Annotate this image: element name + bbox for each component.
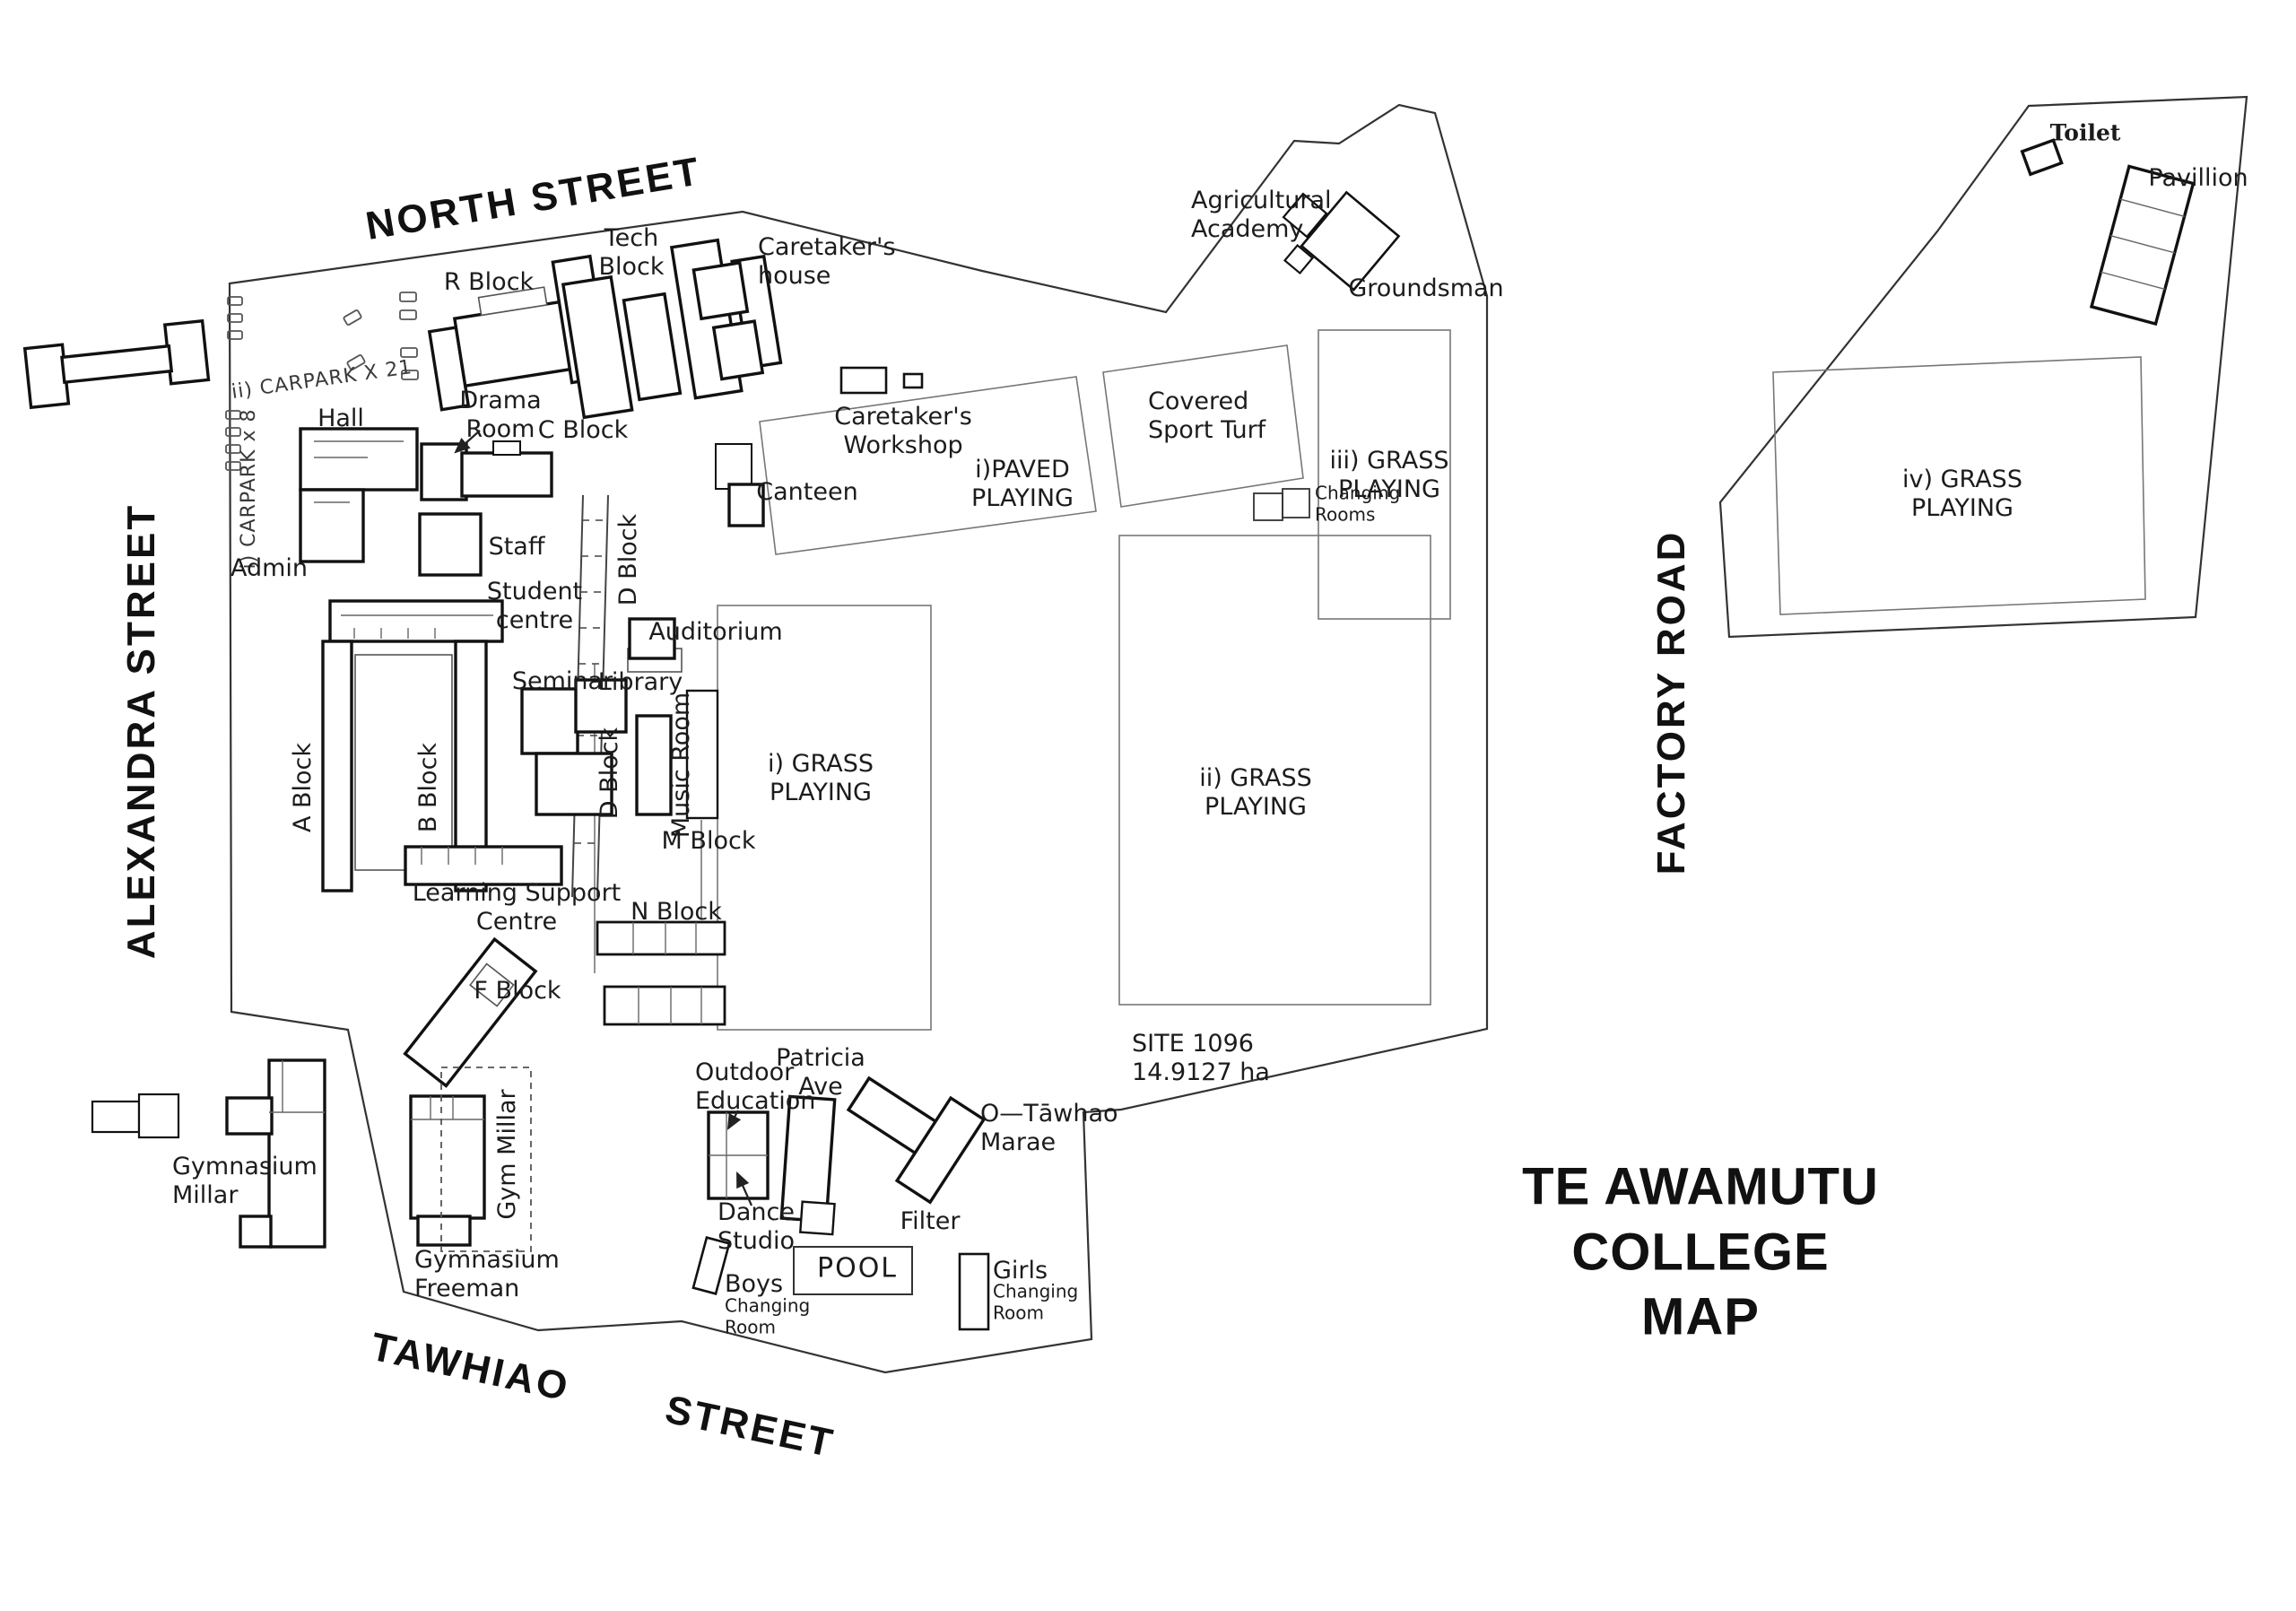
label-carpark-8: i) CARPARK x 8	[238, 408, 261, 569]
label-paved-playing: i)PAVED PLAYING	[971, 456, 1074, 513]
campus-map: NORTH STREET ALEXANDRA STREET FACTORY RO…	[0, 0, 2296, 1611]
label-caretakers-house: Caretaker's house	[758, 233, 896, 291]
label-n-block: N Block	[631, 898, 722, 927]
label-grass-i: i) GRASS PLAYING	[768, 750, 874, 807]
label-boys-changing-room: Changing Room	[725, 1295, 810, 1337]
label-gymnasium-millar: Gymnasium Millar	[172, 1153, 317, 1210]
building-workshop-shed	[841, 368, 886, 393]
map-title: TE AWAMUTU COLLEGE MAP	[1403, 1154, 1998, 1350]
label-r-block: R Block	[444, 268, 534, 297]
label-student-centre: Student centre	[487, 578, 582, 635]
building-gym-freeman	[411, 1096, 484, 1245]
label-d-block-lower: D Block	[596, 727, 624, 819]
label-grass-iv: iv) GRASS PLAYING	[1902, 466, 2022, 523]
street-factory: FACTORY ROAD	[1648, 530, 1695, 875]
west-small-buildings	[92, 1094, 178, 1137]
street-alexandra: ALEXANDRA STREET	[118, 503, 165, 959]
label-changing-rooms: Changing Rooms	[1315, 483, 1400, 525]
grass-i-area	[717, 605, 931, 1030]
label-tech-block: Tech Block	[598, 224, 664, 282]
west-building	[24, 321, 210, 407]
changing-rooms-building	[1254, 489, 1309, 520]
label-canteen: Canteen	[756, 478, 857, 507]
label-f-block: F Block	[474, 977, 561, 1006]
label-a-block: A Block	[289, 743, 317, 832]
label-staff: Staff	[489, 533, 545, 562]
label-pool: POOL	[817, 1252, 898, 1284]
label-drama-room: Drama Room	[459, 387, 541, 444]
building-f-block	[405, 939, 535, 1085]
label-o-tawhao-marae: O—Tāwhao Marae	[980, 1100, 1118, 1157]
label-b-block: B Block	[414, 743, 443, 832]
building-marae	[848, 1078, 984, 1202]
label-hall: Hall	[317, 405, 364, 433]
label-auditorium: Auditorium	[648, 618, 782, 647]
building-music-room	[637, 716, 671, 814]
label-dance-studio: Dance Studio	[717, 1198, 795, 1256]
label-pavillion: Pavillion	[2148, 164, 2248, 193]
label-d-block-upper: D Block	[614, 514, 643, 605]
label-toilet: Toilet	[2050, 119, 2121, 146]
field-outlines	[595, 330, 2145, 1030]
label-m-block: M Block	[662, 827, 756, 856]
building-girls-changing	[960, 1254, 988, 1329]
label-learning-support: Learning Support Centre	[413, 879, 622, 936]
building-c-block	[462, 441, 552, 496]
label-agricultural-academy: Agricultural Academy	[1191, 187, 1332, 244]
label-groundsman: Groundsman	[1348, 274, 1503, 303]
label-filter: Filter	[900, 1207, 961, 1236]
label-music-room: Music Room	[667, 692, 696, 838]
label-caretakers-workshop: Caretaker's Workshop	[834, 403, 972, 460]
building-hall-admin	[300, 429, 481, 575]
label-grass-ii: ii) GRASS PLAYING	[1199, 764, 1311, 822]
label-covered-sport-turf: Covered Sport Turf	[1148, 388, 1265, 445]
label-admin: Admin	[230, 554, 308, 583]
building-outdoor-education	[709, 1112, 768, 1198]
label-gym-millar: Gym Millar	[493, 1089, 522, 1219]
label-girls-changing-room: Changing Room	[993, 1281, 1078, 1323]
label-patricia-ave: Patricia Ave	[776, 1044, 865, 1102]
map-linework	[0, 0, 2296, 1611]
label-gymnasium-freeman: Gymnasium Freeman	[414, 1246, 560, 1303]
building-n-block	[597, 922, 725, 1024]
label-c-block: C Block	[538, 416, 628, 445]
site-info: SITE 1096 14.9127 ha	[1132, 1030, 1270, 1087]
